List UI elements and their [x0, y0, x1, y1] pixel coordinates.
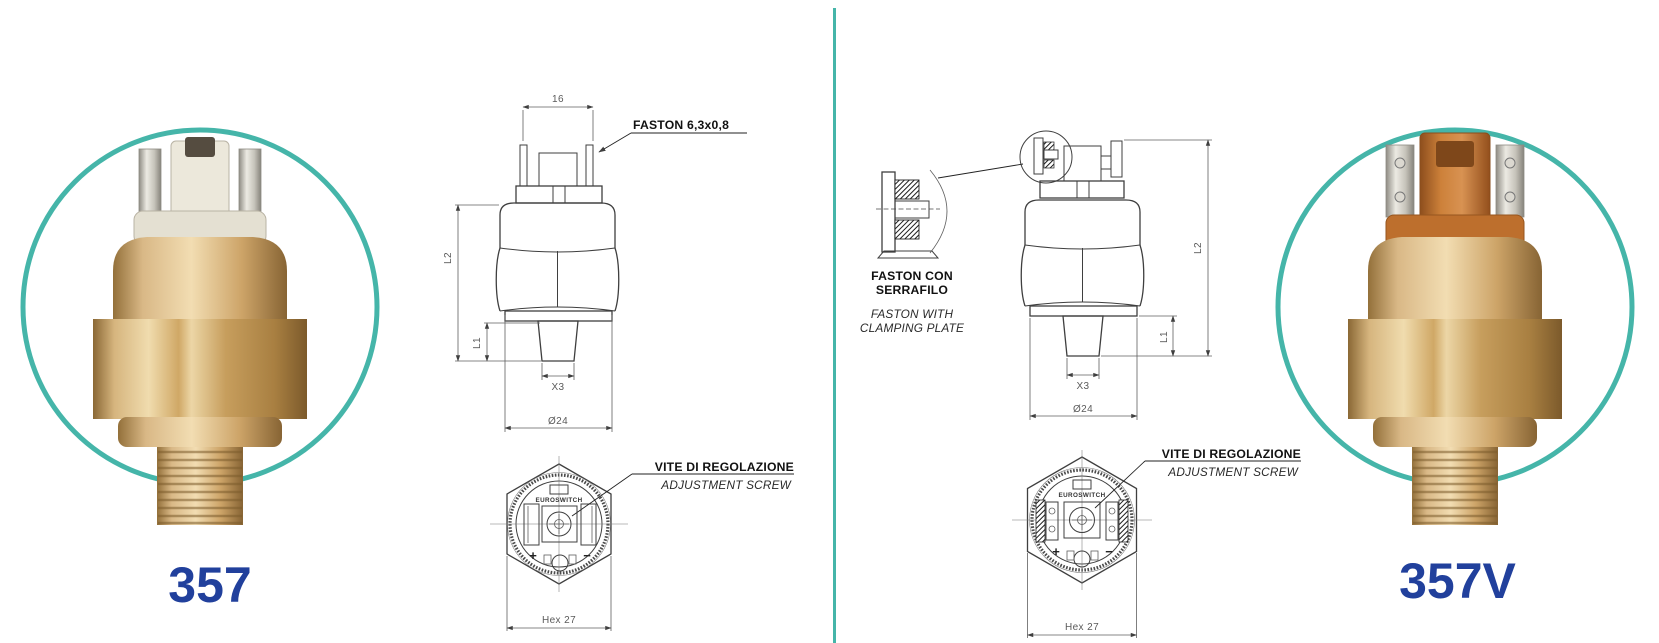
terminal-right-with-clamp	[1106, 500, 1128, 542]
dim-l1-value: L1	[472, 337, 483, 349]
bottom-view: EUROSWITCH + −	[1012, 450, 1152, 590]
dimension-x3: X3	[1067, 358, 1099, 392]
product-photo-357v	[1263, 105, 1653, 535]
bottom-connector	[552, 555, 568, 571]
detail-leader	[938, 131, 1072, 183]
dim-16-value: 16	[552, 94, 564, 105]
dim-dia24-value: Ø24	[1073, 404, 1093, 415]
brass-body	[93, 237, 307, 447]
dimension-l1: L1	[1139, 316, 1177, 356]
adjustment-screw-annotation: VITE DI REGOLAZIONE ADJUSTMENT SCREW	[572, 460, 794, 516]
detail-labels: FASTON CON SERRAFILO FASTON WITH CLAMPIN…	[860, 269, 964, 335]
detail-label-en2: CLAMPING PLATE	[860, 321, 964, 335]
connector-hole	[1436, 141, 1474, 167]
adjust-label-it: VITE DI REGOLAZIONE	[655, 460, 794, 474]
technical-drawing-right: FASTON CON SERRAFILO FASTON WITH CLAMPIN…	[840, 120, 1310, 643]
faston-annotation: FASTON 6,3x0,8	[599, 118, 747, 152]
dim-l2-value: L2	[1193, 242, 1204, 254]
minus-sign: −	[583, 548, 591, 563]
thread-stud	[157, 445, 243, 525]
terminal-left	[524, 504, 539, 545]
terminal-left-with-clamp	[1036, 500, 1058, 542]
faston-label: FASTON 6,3x0,8	[633, 118, 729, 132]
dimension-l1: L1	[472, 323, 540, 361]
adjust-label-en: ADJUSTMENT SCREW	[660, 478, 792, 492]
terminal-right	[581, 504, 596, 545]
bottom-view: EUROSWITCH + −	[490, 456, 628, 592]
brand-text: EUROSWITCH	[535, 497, 582, 504]
dim-x3-value: X3	[1076, 381, 1089, 392]
dimension-dia24: Ø24	[1030, 318, 1137, 420]
model-label-357v: 357V	[1380, 552, 1535, 610]
plus-sign: +	[529, 548, 537, 563]
front-view	[496, 145, 619, 361]
dim-dia24-value: Ø24	[548, 416, 568, 427]
dim-hex27-value: Hex 27	[542, 615, 576, 626]
detail-label-it2: SERRAFILO	[876, 283, 948, 297]
detail-label-en1: FASTON WITH	[871, 307, 954, 321]
plus-sign: +	[1052, 544, 1060, 559]
dim-x3-value: X3	[551, 382, 564, 393]
dim-l1-value: L1	[1159, 331, 1170, 343]
brass-body	[1348, 237, 1562, 447]
product-photo-357	[5, 105, 395, 535]
faston-clamping-detail-sketch	[876, 170, 947, 258]
model-label-357: 357	[150, 556, 270, 614]
brand-text: EUROSWITCH	[1058, 492, 1105, 499]
dimension-x3: X3	[542, 363, 574, 393]
dim-hex27-value: Hex 27	[1065, 622, 1099, 633]
dim-l2-value: L2	[443, 252, 454, 264]
connector-hole	[185, 137, 215, 157]
minus-sign: −	[1105, 544, 1113, 559]
divider-line	[833, 8, 836, 643]
dimension-16: 16	[523, 94, 593, 141]
dimension-dia24: Ø24	[505, 315, 612, 432]
datasheet-page: 357 16	[0, 0, 1659, 643]
dimension-l2: L2	[443, 205, 541, 361]
technical-drawing-left: 16 FASTON 6,3x0,8 L2 L1 X3	[420, 75, 805, 643]
front-view	[1021, 138, 1144, 356]
thread-stud	[1412, 445, 1498, 525]
detail-label-it1: FASTON CON	[871, 269, 953, 283]
